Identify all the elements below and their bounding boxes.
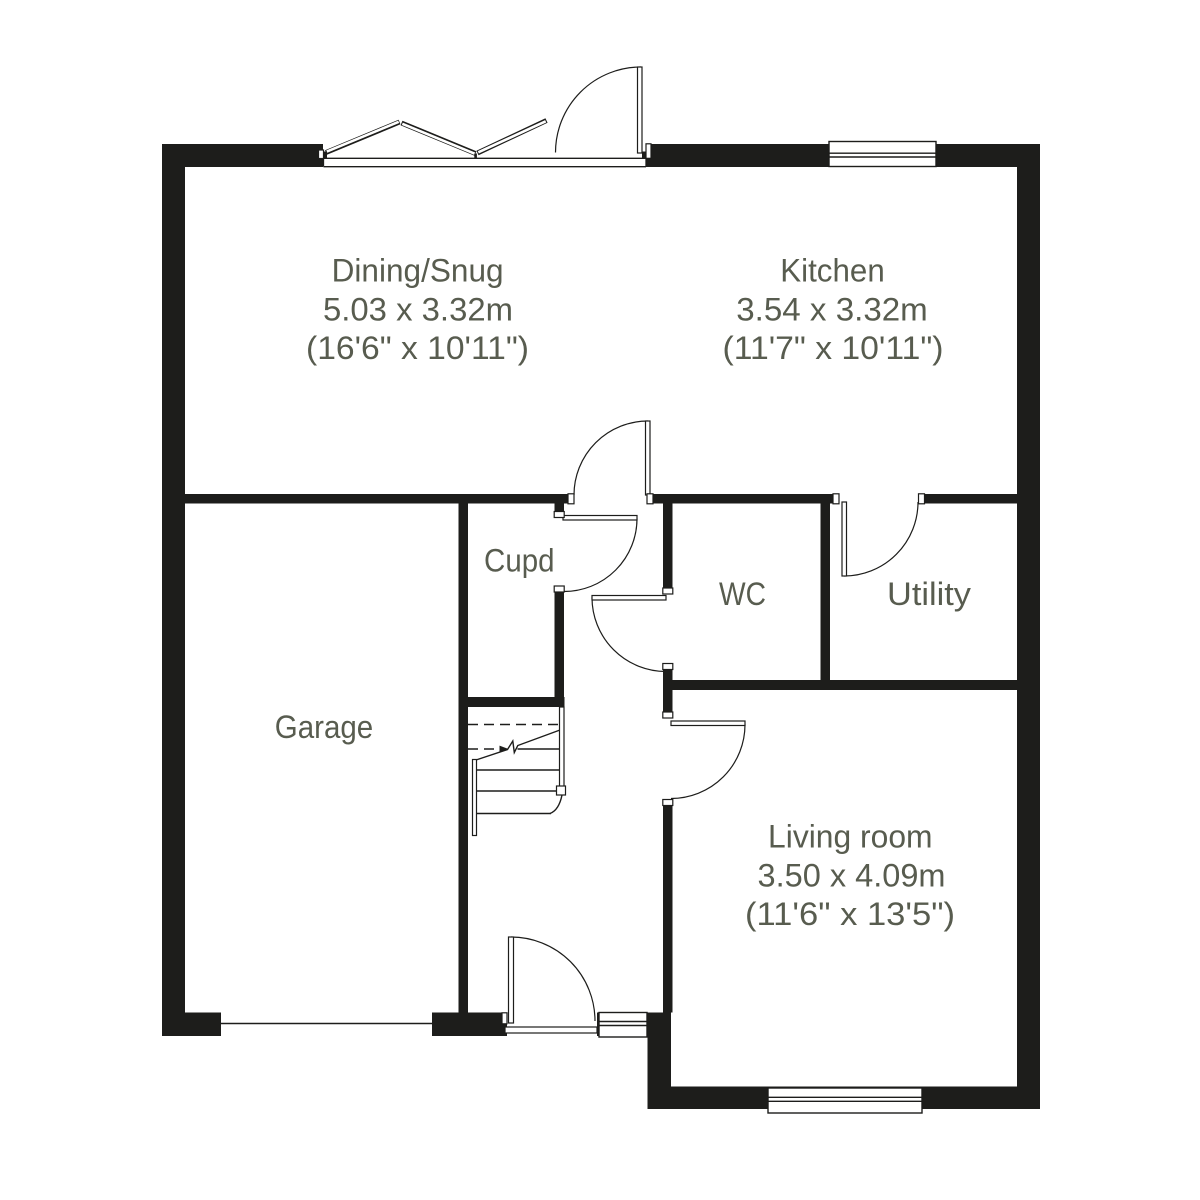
svg-text:Utility: Utility [887, 576, 972, 612]
svg-text:Living room: Living room [768, 819, 933, 855]
svg-text:Cupd: Cupd [484, 543, 555, 579]
svg-text:Dining/Snug: Dining/Snug [332, 253, 504, 289]
svg-text:Garage: Garage [275, 709, 373, 745]
svg-text:3.54 x 3.32m: 3.54 x 3.32m [736, 292, 928, 328]
svg-text:Kitchen: Kitchen [780, 253, 885, 289]
svg-text:3.50 x 4.09m: 3.50 x 4.09m [758, 858, 946, 894]
svg-text:5.03 x 3.32m: 5.03 x 3.32m [323, 292, 513, 328]
svg-text:(11'7" x 10'11"): (11'7" x 10'11") [723, 330, 944, 366]
svg-text:(16'6" x 10'11"): (16'6" x 10'11") [306, 330, 529, 366]
svg-text:WC: WC [719, 576, 766, 612]
svg-text:(11'6" x 13'5"): (11'6" x 13'5") [745, 896, 955, 932]
